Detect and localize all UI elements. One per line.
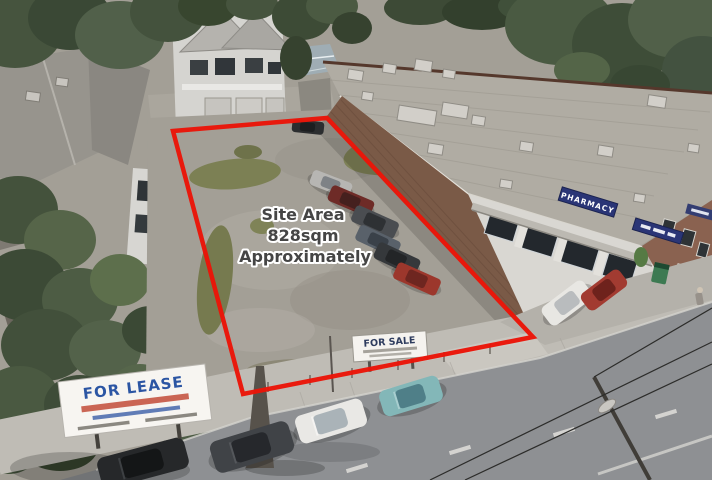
site-area-line2: 828sqm — [267, 226, 338, 245]
potted-plant — [634, 247, 648, 267]
site-area-line1: Site Area — [262, 205, 345, 224]
aerial-property-photo: PHARMACY — [0, 0, 712, 480]
photo-canvas: PHARMACY — [0, 0, 712, 480]
site-area-line3: Approximately — [239, 247, 371, 266]
